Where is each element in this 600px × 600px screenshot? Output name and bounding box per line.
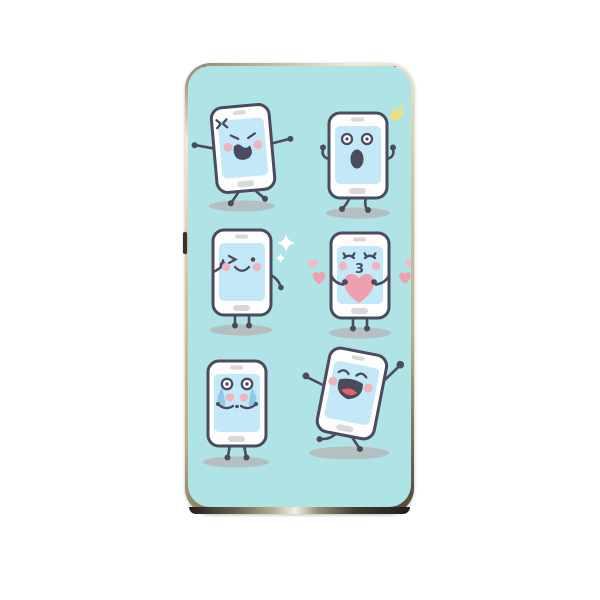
home-button bbox=[351, 308, 368, 314]
phone-character-angry bbox=[188, 96, 302, 214]
phone-character-crying bbox=[188, 351, 296, 469]
case-design-background: 3 bbox=[188, 66, 411, 507]
character-shadow bbox=[209, 201, 275, 212]
phone-character-kissing: 3 bbox=[303, 223, 411, 341]
pupil bbox=[345, 137, 348, 140]
foot bbox=[246, 323, 252, 329]
character-figure bbox=[295, 342, 405, 457]
home-button bbox=[228, 436, 245, 442]
pupil bbox=[225, 382, 228, 385]
foot bbox=[339, 206, 345, 212]
shocked-mouth bbox=[351, 150, 364, 169]
cheek bbox=[222, 263, 230, 271]
phone-character-winking bbox=[188, 220, 301, 338]
foot bbox=[364, 326, 370, 332]
heart-icon bbox=[308, 260, 317, 269]
case-bottom-bezel bbox=[189, 507, 410, 514]
sparkle-flash-icon bbox=[389, 104, 407, 121]
cheek bbox=[372, 262, 380, 270]
hand bbox=[320, 145, 326, 151]
foot bbox=[350, 326, 356, 332]
kiss-mouth: 3 bbox=[355, 262, 364, 277]
heart-icon bbox=[313, 272, 326, 284]
cheek bbox=[253, 263, 261, 271]
sparkle-diamond-icon bbox=[277, 234, 295, 252]
foot bbox=[232, 323, 238, 329]
mouth-dot bbox=[235, 405, 239, 409]
character-shadow bbox=[309, 447, 389, 460]
speaker-slot bbox=[235, 235, 248, 239]
character-shadow bbox=[203, 457, 269, 468]
phone-character-surprised bbox=[301, 103, 411, 221]
speaker-slot bbox=[351, 118, 364, 122]
arm bbox=[271, 139, 289, 144]
character-shadow bbox=[329, 328, 391, 339]
foot bbox=[225, 455, 231, 461]
cheek bbox=[339, 262, 347, 270]
heart-icon bbox=[406, 259, 411, 267]
hand bbox=[371, 279, 377, 285]
hand bbox=[287, 136, 294, 143]
home-button bbox=[349, 188, 366, 194]
hand bbox=[254, 402, 258, 406]
speaker-slot bbox=[353, 238, 366, 242]
phone-character-dancing bbox=[295, 341, 411, 459]
arm bbox=[196, 144, 214, 151]
character-figure bbox=[208, 361, 266, 461]
hand bbox=[191, 142, 198, 149]
arm bbox=[306, 377, 325, 385]
character-shadow bbox=[210, 325, 272, 336]
home-button bbox=[233, 305, 250, 311]
character-figure bbox=[320, 113, 396, 213]
foot bbox=[316, 436, 323, 443]
hand bbox=[390, 145, 396, 151]
heart-icon bbox=[399, 272, 411, 283]
volume-button bbox=[183, 232, 187, 254]
sparkle-diamond-icon bbox=[276, 253, 286, 263]
pupil bbox=[245, 382, 248, 385]
foot bbox=[244, 455, 250, 461]
pupil bbox=[365, 137, 368, 140]
phone-case: 3 bbox=[185, 63, 414, 514]
dot-eye bbox=[251, 257, 256, 262]
character-figure bbox=[213, 230, 284, 329]
foot bbox=[365, 207, 371, 213]
character-figure bbox=[189, 102, 299, 210]
product-image: 3 bbox=[0, 0, 600, 600]
hand bbox=[342, 279, 348, 285]
hand bbox=[278, 285, 284, 291]
hand bbox=[216, 402, 220, 406]
character-figure: 3 bbox=[331, 233, 389, 332]
character-shadow bbox=[326, 208, 390, 219]
speaker-slot bbox=[230, 366, 243, 370]
phone-screen bbox=[219, 243, 265, 301]
